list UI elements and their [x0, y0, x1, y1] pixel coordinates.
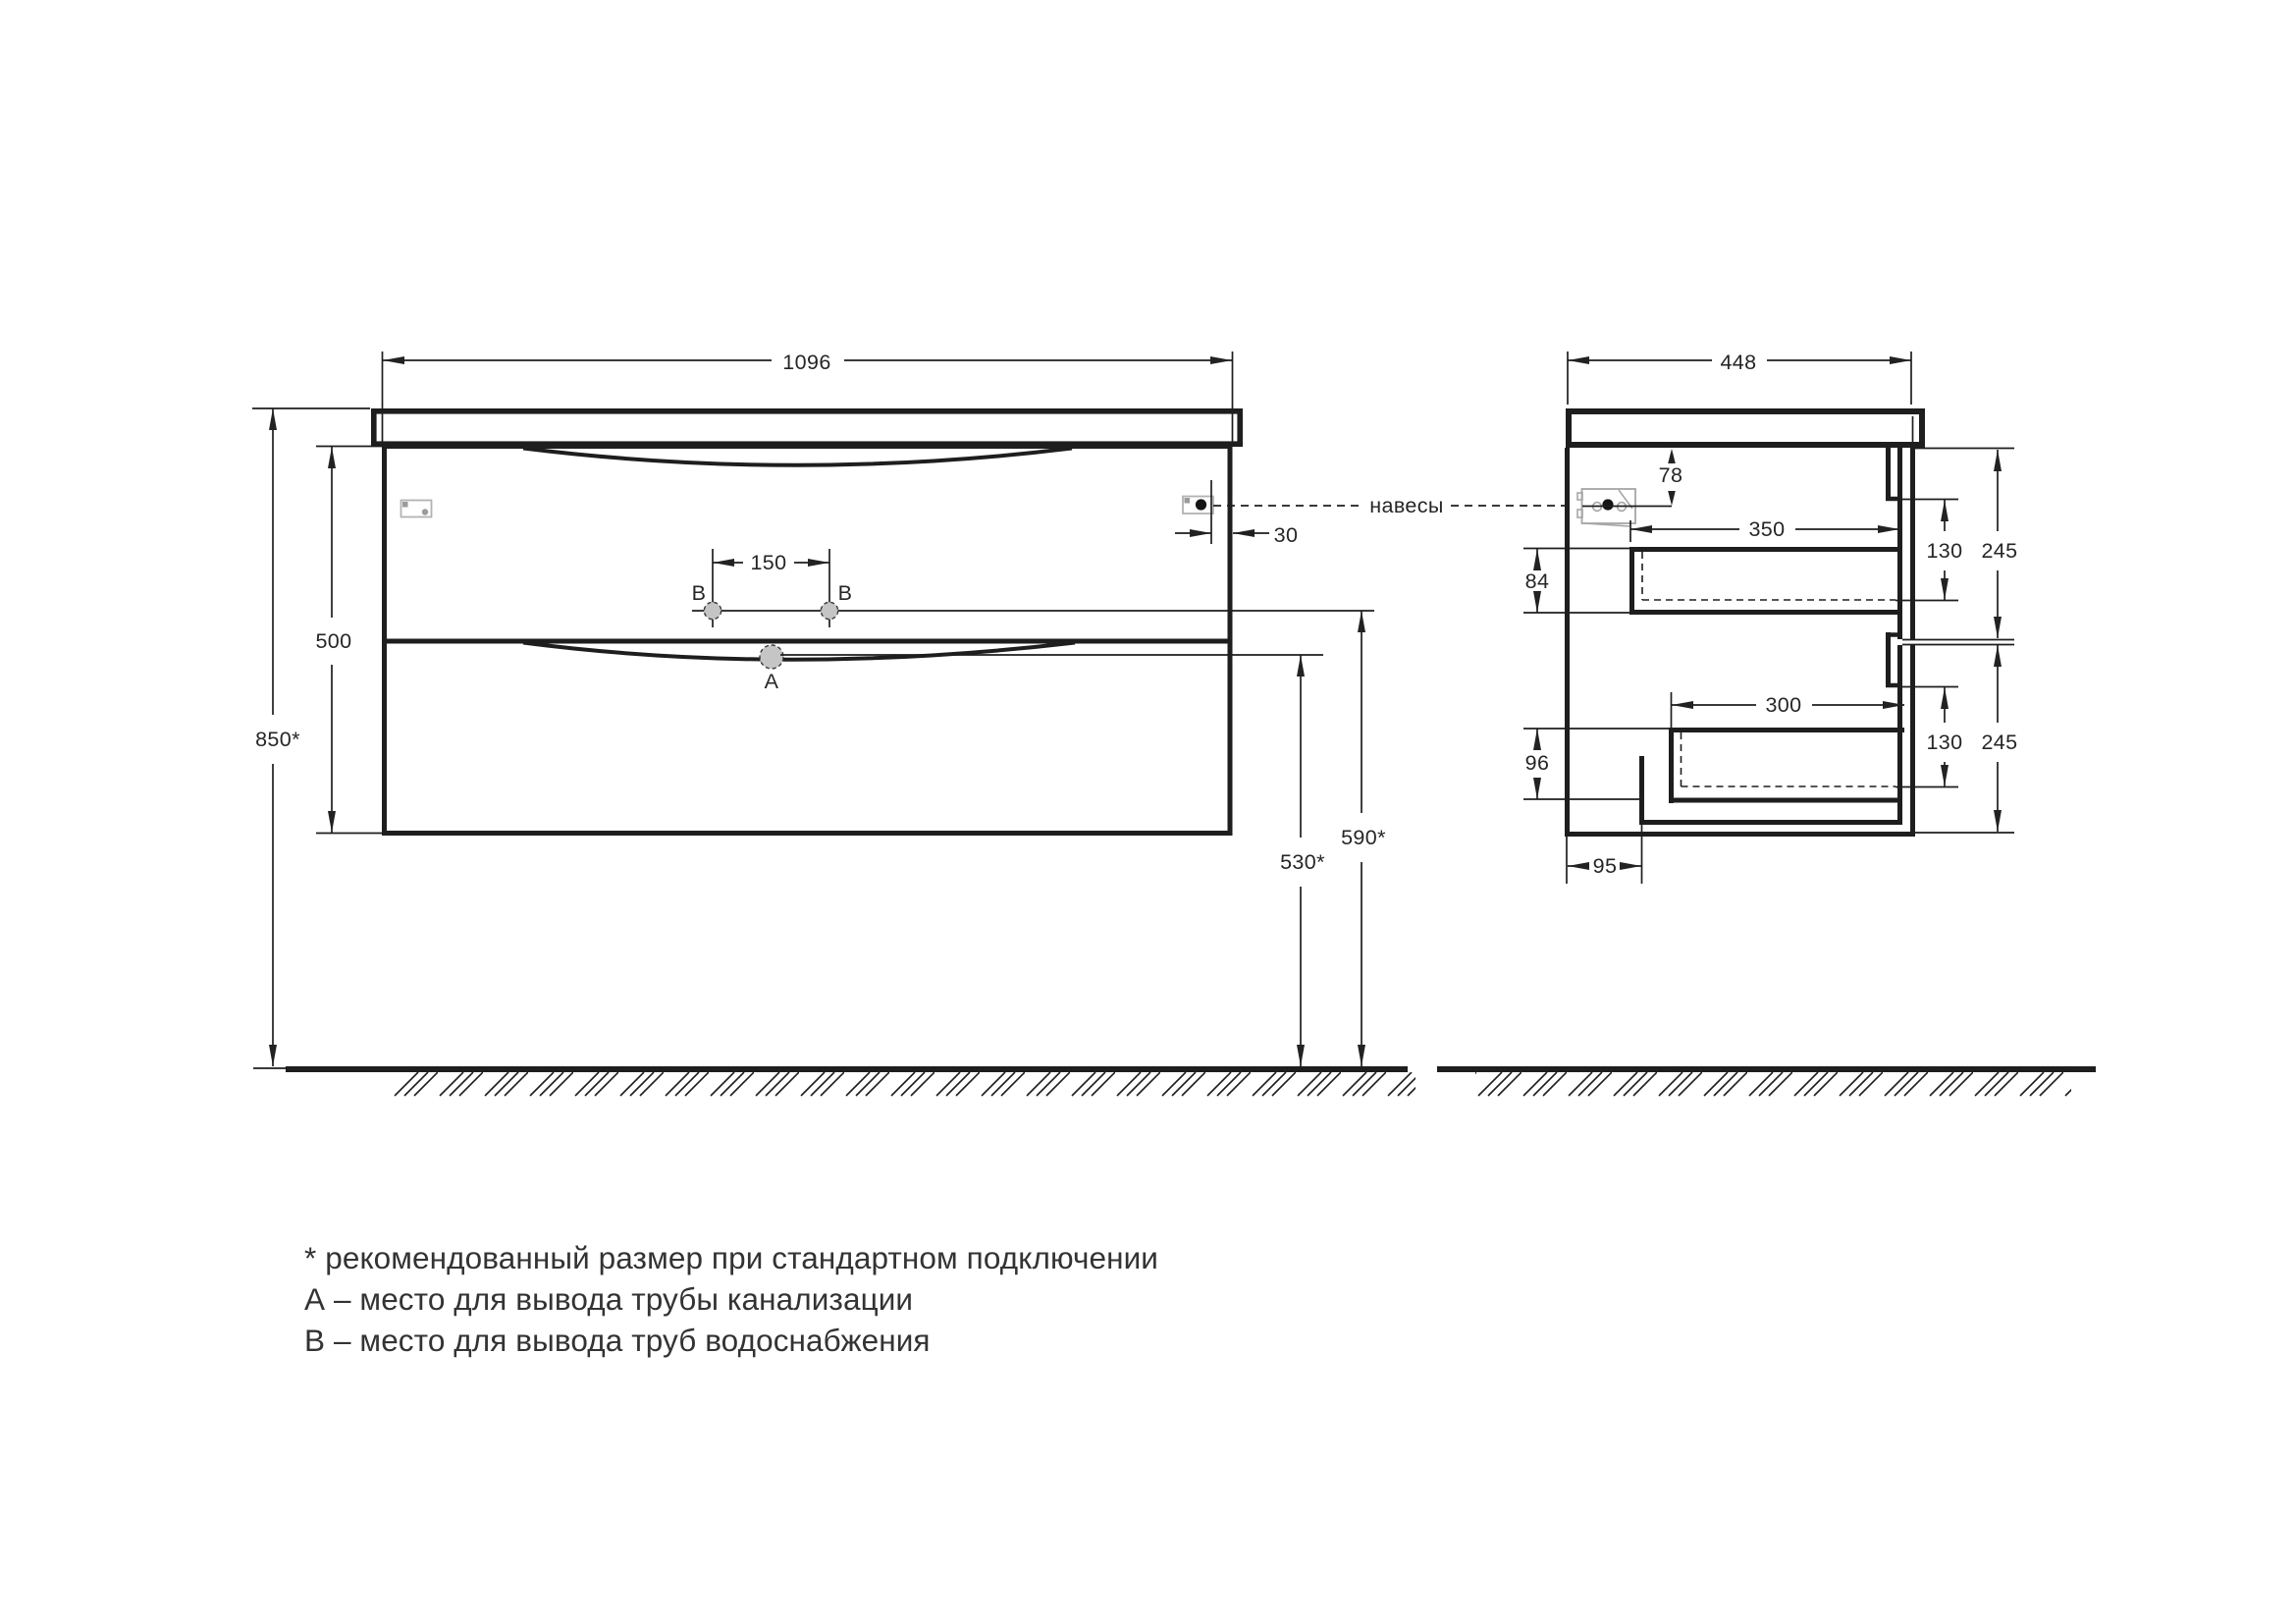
svg-text:96: 96: [1525, 751, 1550, 775]
svg-text:A: A: [765, 670, 779, 693]
svg-text:850*: 850*: [255, 728, 300, 751]
svg-text:300: 300: [1765, 693, 1801, 717]
svg-text:590*: 590*: [1341, 826, 1386, 849]
svg-text:B: B: [692, 581, 707, 605]
svg-text:1096: 1096: [782, 351, 830, 374]
svg-text:30: 30: [1274, 523, 1299, 547]
svg-text:78: 78: [1659, 463, 1683, 487]
svg-text:B: B: [838, 581, 853, 605]
svg-text:150: 150: [750, 551, 786, 574]
svg-text:500: 500: [315, 629, 351, 653]
svg-text:навесы: навесы: [1369, 494, 1444, 517]
svg-text:* рекомендованный размер при с: * рекомендованный размер при стандартном…: [304, 1240, 1158, 1275]
svg-text:130: 130: [1926, 539, 1962, 563]
svg-text:А – место для вывода трубы кан: А – место для вывода трубы канализации: [304, 1281, 913, 1317]
svg-text:350: 350: [1748, 517, 1785, 541]
svg-text:В – место для вывода труб водо: В – место для вывода труб водоснабжения: [304, 1323, 931, 1358]
svg-text:84: 84: [1525, 569, 1550, 593]
svg-text:130: 130: [1926, 731, 1962, 754]
svg-text:95: 95: [1593, 854, 1618, 878]
svg-text:245: 245: [1981, 539, 2017, 563]
svg-text:530*: 530*: [1280, 850, 1325, 874]
svg-text:245: 245: [1981, 731, 2017, 754]
svg-text:448: 448: [1720, 351, 1756, 374]
